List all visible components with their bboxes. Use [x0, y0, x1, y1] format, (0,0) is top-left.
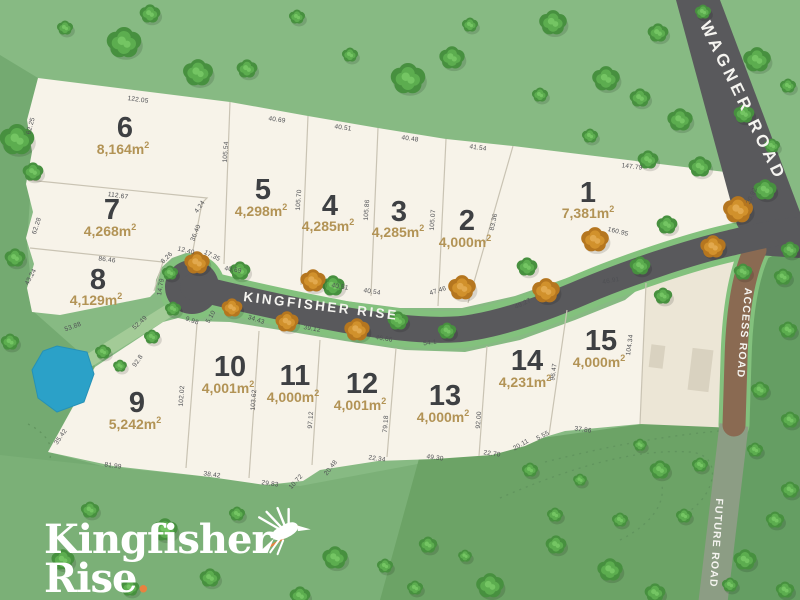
lot-area: 4,298m2 — [235, 202, 288, 219]
logo-line2: Rise. — [44, 555, 149, 600]
lot-number: 7 — [104, 194, 120, 226]
measurement-label: 102.02 — [178, 385, 186, 407]
lot-number: 2 — [459, 205, 475, 237]
lot-number: 5 — [255, 174, 271, 206]
lot-area: 4,285m2 — [302, 217, 355, 234]
measurement-label: 92.00 — [475, 411, 483, 429]
lot-number: 11 — [280, 360, 311, 392]
lot-area: 8,164m2 — [97, 140, 150, 157]
building — [649, 344, 666, 369]
lot-number: 6 — [117, 112, 133, 144]
measurement-label: 105.07 — [429, 209, 437, 231]
lot-number: 14 — [511, 345, 543, 377]
lot-area: 5,242m2 — [109, 415, 162, 432]
lot-area: 4,231m2 — [499, 373, 552, 390]
lot-area: 4,000m2 — [267, 388, 320, 405]
site-plan-map: 122.0562.25112.6762.2886.4643.244.2436.4… — [0, 0, 800, 600]
lot-number: 15 — [585, 325, 617, 357]
lot-area: 4,285m2 — [372, 223, 425, 240]
lot-area: 4,129m2 — [70, 291, 123, 308]
measurement-label: 97.12 — [307, 411, 315, 429]
lot-number: 9 — [129, 387, 145, 419]
measurement-label: 105.86 — [363, 199, 371, 221]
lot-area: 7,381m2 — [562, 204, 615, 221]
lot-number: 12 — [346, 368, 378, 400]
lot-area: 4,000m2 — [439, 233, 492, 250]
measurement-label: 79.18 — [382, 415, 390, 433]
measurement-label: 105.54 — [222, 141, 230, 163]
lot-area: 4,001m2 — [202, 379, 255, 396]
lot-area: 4,001m2 — [334, 396, 387, 413]
lot-area: 4,000m2 — [573, 353, 626, 370]
lot-area: 4,000m2 — [417, 408, 470, 425]
measurement-label: 105.70 — [295, 189, 303, 211]
plan-svg: 122.0562.25112.6762.2886.4643.244.2436.4… — [0, 0, 800, 600]
lot-area: 4,268m2 — [84, 222, 137, 239]
measurement-label: 103.62 — [250, 389, 258, 411]
lot-number: 13 — [429, 380, 461, 412]
lot-number: 10 — [214, 351, 246, 383]
